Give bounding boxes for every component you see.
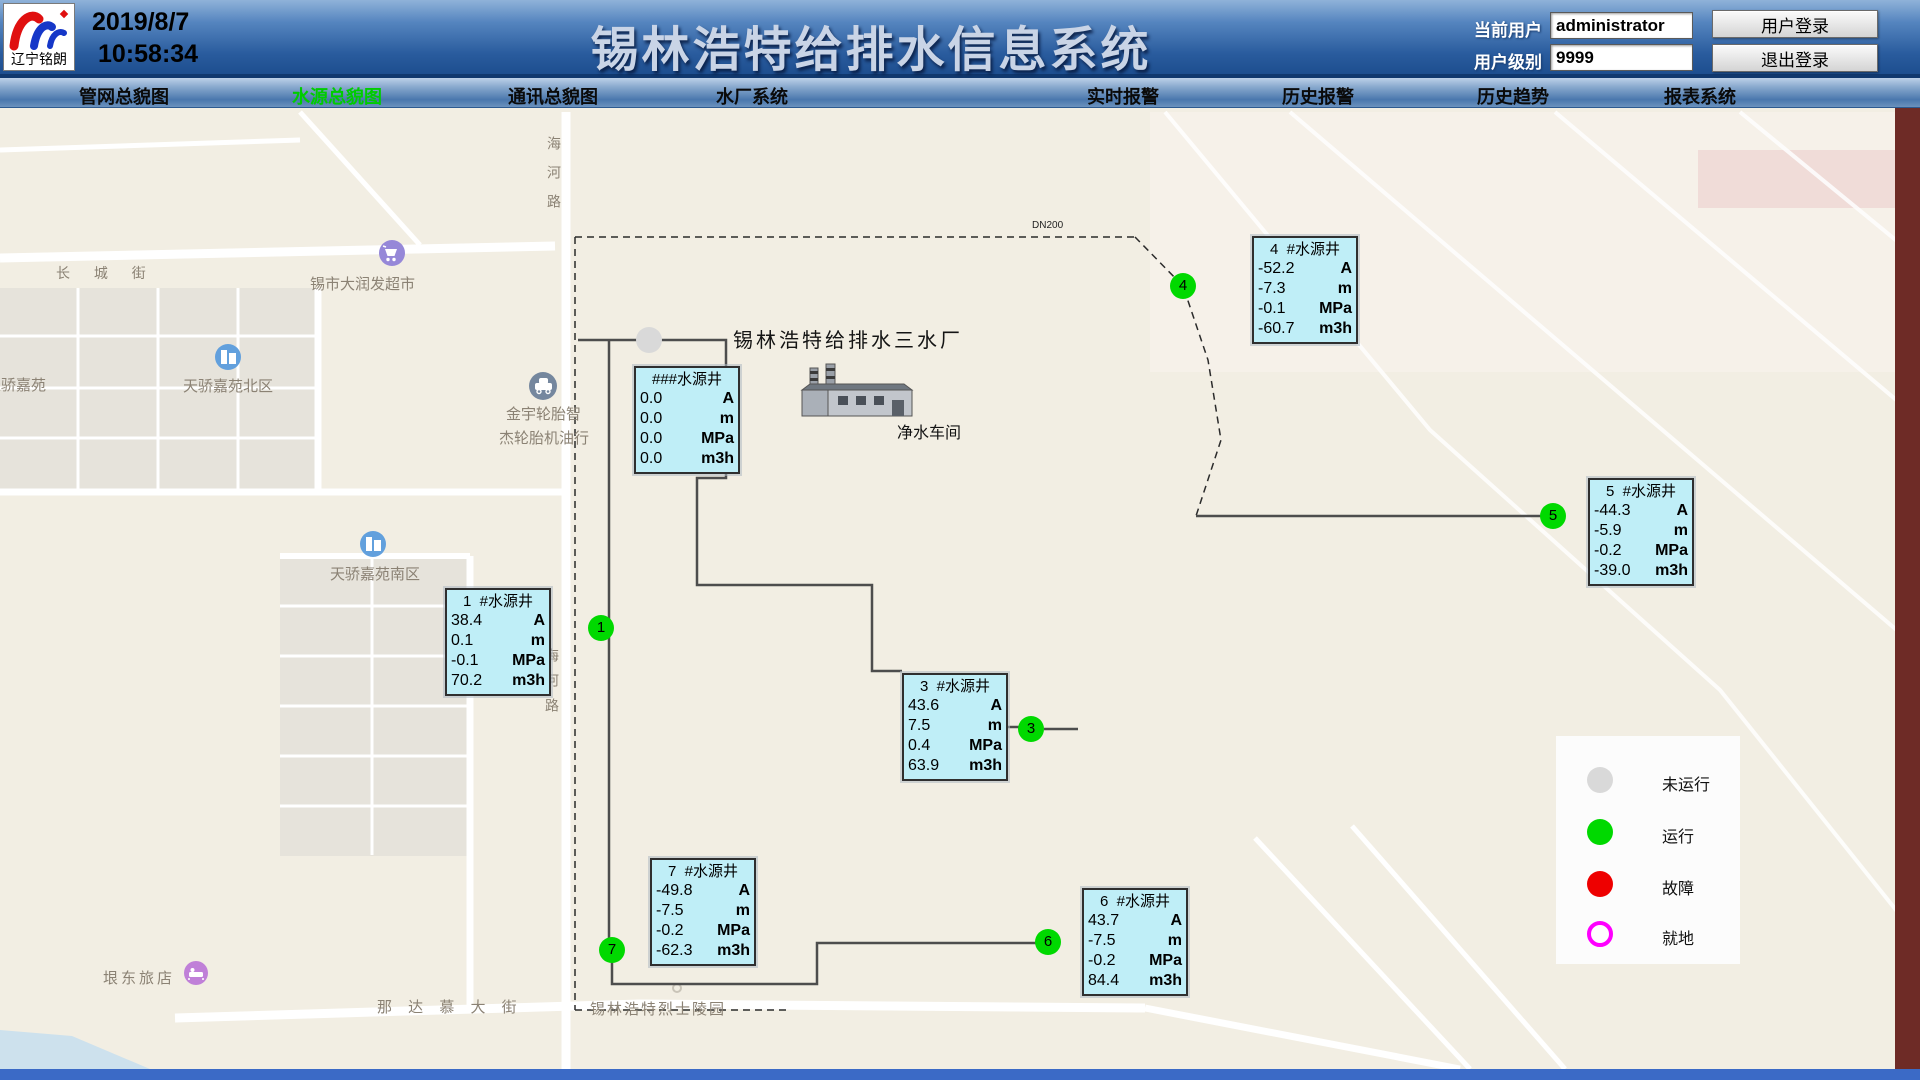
well-value: -49.8: [656, 881, 692, 901]
status-legend-panel: 未运行 运行 故障 就地: [1556, 736, 1740, 964]
well-value: -52.2: [1258, 259, 1294, 279]
well-unit: A: [1676, 501, 1688, 521]
well-value: 38.4: [451, 611, 482, 631]
well-value: -7.3: [1258, 279, 1286, 299]
nav-item-water-source-overview[interactable]: 水源总貌图: [292, 83, 382, 109]
well-unit: m3h: [512, 671, 545, 691]
well-unit: A: [990, 696, 1002, 716]
well-unit: MPa: [701, 429, 734, 449]
legend-row-running: 运行: [1556, 819, 1740, 845]
poi-label-tianjiao-south: 天骄嘉苑南区: [330, 563, 420, 584]
well-measurement-row: -7.5m: [1088, 931, 1182, 951]
current-date: 2019/8/7: [92, 8, 189, 37]
water-area: [0, 1030, 150, 1069]
well-unit: m3h: [1149, 971, 1182, 991]
legend-label: 未运行: [1662, 771, 1710, 795]
well-value: -0.2: [656, 921, 684, 941]
nav-item-report-system[interactable]: 报表系统: [1664, 83, 1736, 109]
well-measurement-row: 43.7A: [1088, 911, 1182, 931]
well-measurement-row: 63.9m3h: [908, 756, 1002, 776]
well-measurement-row: -0.2MPa: [1088, 951, 1182, 971]
well-unit: MPa: [1655, 541, 1688, 561]
well-unit: A: [738, 881, 750, 901]
well-value: -44.3: [1594, 501, 1630, 521]
nav-item-communication-overview[interactable]: 通讯总貌图: [508, 83, 598, 109]
well-unit: m3h: [1319, 319, 1352, 339]
well-unit: m: [720, 409, 734, 429]
local-status-icon: [1587, 921, 1613, 947]
well-box-title: 7 #水源井: [656, 862, 750, 881]
well-measurement-row: 0.0A: [640, 389, 734, 409]
well-measurement-row: 7.5m: [908, 716, 1002, 736]
window-bottom-strip: [0, 1069, 1920, 1080]
well-unit: m3h: [701, 449, 734, 469]
well-measurement-row: -49.8A: [656, 881, 750, 901]
well-value: -60.7: [1258, 319, 1294, 339]
well-measurement-row: -60.7m3h: [1258, 319, 1352, 339]
logout-button[interactable]: 退出登录: [1712, 44, 1878, 72]
well-unit: m3h: [717, 941, 750, 961]
fault-status-icon: [1587, 871, 1613, 897]
well-measurement-row: -0.2MPa: [1594, 541, 1688, 561]
nav-item-pipe-network-overview[interactable]: 管网总貌图: [79, 83, 169, 109]
well-unit: A: [1170, 911, 1182, 931]
well-marker-5[interactable]: 5: [1540, 503, 1566, 529]
nav-item-history-alarm[interactable]: 历史报警: [1282, 83, 1354, 109]
well-value: -5.9: [1594, 521, 1622, 541]
well-value: -7.5: [656, 901, 684, 921]
well-value: -7.5: [1088, 931, 1116, 951]
well-value: 0.0: [640, 429, 662, 449]
nav-item-water-plant-system[interactable]: 水厂系统: [716, 83, 788, 109]
well-value: -62.3: [656, 941, 692, 961]
well-measurement-row: 43.6A: [908, 696, 1002, 716]
well-box-title: 1 #水源井: [451, 592, 545, 611]
well-measurement-row: -39.0m3h: [1594, 561, 1688, 581]
well-box-title: 6 #水源井: [1088, 892, 1182, 911]
company-logo: 辽宁铭朗: [3, 3, 75, 71]
well-measurement-row: -7.3m: [1258, 279, 1352, 299]
well-marker-6[interactable]: 6: [1035, 929, 1061, 955]
well-unit: m: [736, 901, 750, 921]
current-user-label: 当前用户: [1474, 16, 1542, 41]
well-value: 63.9: [908, 756, 939, 776]
hotel-icon: [184, 961, 208, 985]
well-unit: m3h: [1655, 561, 1688, 581]
well-unit: A: [533, 611, 545, 631]
well-value: 7.5: [908, 716, 930, 736]
well-measurement-row: 0.1m: [451, 631, 545, 651]
well-measurement-row: -5.9m: [1594, 521, 1688, 541]
well-value: 70.2: [451, 671, 482, 691]
well-info-box-6: 6 #水源井43.7A-7.5m-0.2MPa84.4m3h: [1082, 888, 1188, 996]
well-unit: A: [1340, 259, 1352, 279]
scada-window: 辽宁铭朗 2019/8/7 10:58:34 锡林浩特给排水信息系统 当前用户 …: [0, 0, 1920, 1080]
nav-item-realtime-alarm[interactable]: 实时报警: [1087, 83, 1159, 109]
residential-south-icon: [360, 531, 386, 557]
poi-label-jielun: 杰轮胎机油行: [499, 427, 589, 448]
well-unit: m: [1168, 931, 1182, 951]
well-measurement-row: 0.0MPa: [640, 429, 734, 449]
well-measurement-row: 84.4m3h: [1088, 971, 1182, 991]
well-unit: MPa: [717, 921, 750, 941]
legend-label: 运行: [1662, 823, 1694, 847]
well-measurement-row: 70.2m3h: [451, 671, 545, 691]
nav-bar: 管网总貌图 水源总貌图 通讯总貌图 水厂系统 实时报警 历史报警 历史趋势 报表…: [0, 78, 1920, 108]
pipe-diameter-label: DN200: [1032, 220, 1063, 231]
street-label-nadamu: 那 达 慕 大 街: [377, 996, 523, 1017]
well-value: 0.1: [451, 631, 473, 651]
plant-name-label: 锡林浩特给排水三水厂: [733, 324, 963, 353]
legend-label: 故障: [1662, 875, 1694, 899]
well-unit: m: [1338, 279, 1352, 299]
current-time: 10:58:34: [98, 40, 198, 69]
well-box-title: 4 #水源井: [1258, 240, 1352, 259]
poi-label-jinyu: 金宇轮胎智: [506, 403, 581, 424]
well-info-box-7: 7 #水源井-49.8A-7.5m-0.2MPa-62.3m3h: [650, 858, 756, 966]
well-unit: MPa: [512, 651, 545, 671]
nav-item-history-trend[interactable]: 历史趋势: [1477, 83, 1549, 109]
well-info-box-1: 1 #水源井38.4A0.1m-0.1MPa70.2m3h: [445, 588, 551, 696]
water-plant-factory-icon: [796, 362, 918, 420]
well-marker-4[interactable]: 4: [1170, 273, 1196, 299]
well-unit: MPa: [1149, 951, 1182, 971]
legend-row-local: 就地: [1556, 921, 1740, 947]
well-measurement-row: -7.5m: [656, 901, 750, 921]
well-box-title: 5 #水源井: [1594, 482, 1688, 501]
well-value: 43.6: [908, 696, 939, 716]
well-measurement-row: -44.3A: [1594, 501, 1688, 521]
well-measurement-row: 0.0m: [640, 409, 734, 429]
well-measurement-row: 0.0m3h: [640, 449, 734, 469]
well-measurement-row: 0.4MPa: [908, 736, 1002, 756]
well-unit: MPa: [969, 736, 1002, 756]
well-info-box-4: 4 #水源井-52.2A-7.3m-0.1MPa-60.7m3h: [1252, 236, 1358, 344]
well-marker-3[interactable]: 3: [1018, 716, 1044, 742]
well-value: 0.0: [640, 449, 662, 469]
well-measurement-row: -0.1MPa: [451, 651, 545, 671]
well-measurement-row: -62.3m3h: [656, 941, 750, 961]
well-marker-7[interactable]: 7: [599, 937, 625, 963]
residential-north-icon: [215, 344, 241, 370]
user-login-button[interactable]: 用户登录: [1712, 10, 1878, 38]
current-user-input[interactable]: [1550, 12, 1693, 39]
well-unit: m: [1674, 521, 1688, 541]
well-info-box-5: 5 #水源井-44.3A-5.9m-0.2MPa-39.0m3h: [1588, 478, 1694, 586]
well-unit: MPa: [1319, 299, 1352, 319]
window-right-strip: [1895, 108, 1920, 1069]
not-running-status-icon: [1587, 767, 1613, 793]
well-measurement-row: 38.4A: [451, 611, 545, 631]
well-info-box-###: ###水源井0.0A0.0m0.0MPa0.0m3h: [634, 366, 740, 474]
well-value: -0.2: [1594, 541, 1622, 561]
legend-row-not-running: 未运行: [1556, 767, 1740, 793]
well-info-box-3: 3 #水源井43.6A7.5m0.4MPa63.9m3h: [902, 673, 1008, 781]
well-value: 0.0: [640, 409, 662, 429]
street-label-haihe-top: 海河路: [544, 136, 564, 223]
purification-workshop-label: 净水车间: [897, 419, 961, 443]
page-title: 锡林浩特给排水信息系统: [500, 10, 1242, 80]
well-value: -0.2: [1088, 951, 1116, 971]
well-value: 84.4: [1088, 971, 1119, 991]
header-bar: 辽宁铭朗 2019/8/7 10:58:34 锡林浩特给排水信息系统 当前用户 …: [0, 0, 1920, 78]
user-level-input[interactable]: [1550, 44, 1693, 71]
poi-label-supermarket: 锡市大润发超市: [310, 273, 415, 294]
well-value: -0.1: [451, 651, 479, 671]
well-value: 43.7: [1088, 911, 1119, 931]
supermarket-icon: [379, 240, 405, 266]
legend-label: 就地: [1662, 925, 1694, 949]
auto-service-icon: [529, 372, 557, 400]
well-value: 0.4: [908, 736, 930, 756]
running-status-icon: [1587, 819, 1613, 845]
logo-text: 辽宁铭朗: [11, 53, 67, 68]
well-unit: A: [722, 389, 734, 409]
well-box-title: 3 #水源井: [908, 677, 1002, 696]
well-box-title: ###水源井: [640, 370, 734, 389]
poi-label-martyrs-cemetery: 锡林浩特烈士陵园: [590, 998, 726, 1019]
well-value: -0.1: [1258, 299, 1286, 319]
street-label-changcheng: 长 城 街: [56, 263, 156, 283]
well-measurement-row: -0.1MPa: [1258, 299, 1352, 319]
legend-row-fault: 故障: [1556, 871, 1740, 897]
logo-swoosh-icon: [8, 6, 72, 52]
well-marker-unassigned[interactable]: [636, 327, 662, 353]
well-unit: m: [988, 716, 1002, 736]
well-unit: m3h: [969, 756, 1002, 776]
well-measurement-row: -52.2A: [1258, 259, 1352, 279]
poi-label-tianjiao-north: 天骄嘉苑北区: [183, 375, 273, 396]
well-marker-1[interactable]: 1: [588, 615, 614, 641]
well-value: 0.0: [640, 389, 662, 409]
well-measurement-row: -0.2MPa: [656, 921, 750, 941]
well-unit: m: [531, 631, 545, 651]
poi-label-hotel: 垠东旅店: [103, 967, 175, 988]
well-value: -39.0: [1594, 561, 1630, 581]
poi-label-tianjiao: 天骄嘉苑: [0, 374, 46, 395]
user-level-label: 用户级别: [1474, 48, 1542, 73]
